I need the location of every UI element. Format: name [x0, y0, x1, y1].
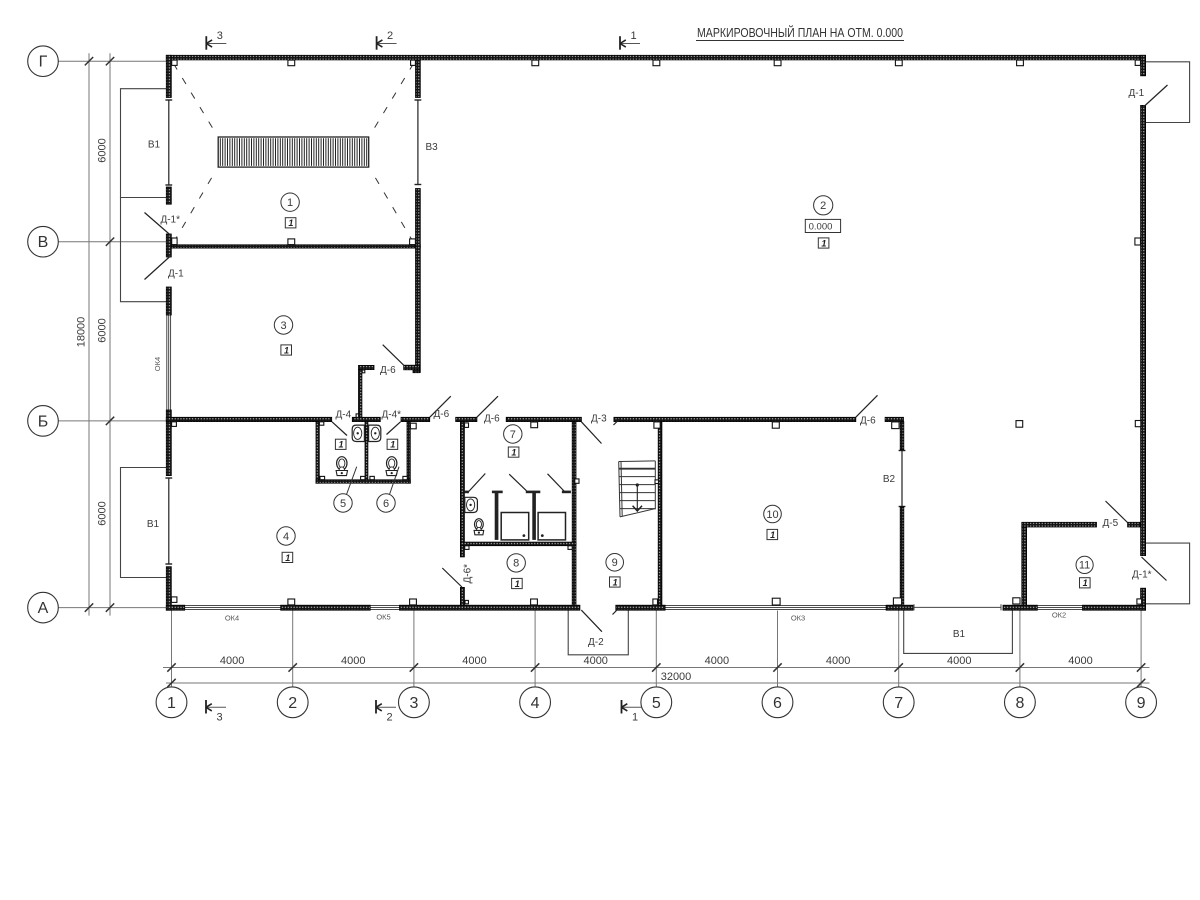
svg-text:7: 7: [510, 429, 516, 441]
svg-text:4000: 4000: [341, 655, 365, 667]
svg-text:4000: 4000: [220, 655, 244, 667]
svg-text:4: 4: [531, 695, 540, 712]
svg-text:3: 3: [217, 30, 223, 42]
svg-text:2: 2: [820, 200, 826, 212]
svg-text:Д-2: Д-2: [588, 637, 604, 648]
svg-text:4000: 4000: [462, 655, 486, 667]
svg-text:1: 1: [630, 30, 636, 42]
svg-text:В1: В1: [953, 629, 966, 640]
svg-text:Д-1*: Д-1*: [1132, 570, 1152, 581]
svg-text:4000: 4000: [705, 655, 729, 667]
svg-text:1: 1: [1083, 578, 1088, 588]
svg-text:1: 1: [515, 579, 520, 589]
svg-text:Б: Б: [38, 413, 49, 430]
svg-text:6: 6: [773, 695, 782, 712]
svg-text:В2: В2: [883, 474, 896, 485]
svg-text:Д-6*: Д-6*: [463, 564, 474, 584]
svg-text:8: 8: [1015, 695, 1024, 712]
svg-text:ОК3: ОК3: [791, 614, 805, 623]
svg-text:Д-1*: Д-1*: [160, 215, 180, 226]
svg-text:7: 7: [894, 695, 903, 712]
svg-text:Д-4*: Д-4*: [382, 409, 402, 420]
svg-text:1: 1: [511, 448, 516, 458]
svg-text:11: 11: [1079, 560, 1090, 572]
svg-text:Г: Г: [39, 54, 48, 71]
svg-text:9: 9: [612, 557, 618, 569]
svg-text:10: 10: [766, 509, 778, 521]
svg-text:3: 3: [280, 320, 286, 332]
svg-text:Д-3: Д-3: [591, 414, 607, 425]
svg-text:Д-5: Д-5: [1103, 518, 1119, 529]
svg-text:4000: 4000: [583, 655, 607, 667]
svg-text:Д-1: Д-1: [168, 269, 184, 280]
svg-text:1: 1: [285, 553, 290, 563]
svg-text:Д-6: Д-6: [484, 414, 500, 425]
svg-text:Д-1: Д-1: [1129, 88, 1145, 99]
svg-text:32000: 32000: [661, 671, 692, 683]
svg-text:1: 1: [770, 530, 775, 540]
svg-text:4000: 4000: [1068, 655, 1092, 667]
svg-text:2: 2: [288, 695, 297, 712]
svg-text:2: 2: [387, 30, 393, 42]
svg-text:Д-6: Д-6: [380, 365, 396, 376]
svg-text:МАРКИРОВОЧНЫЙ ПЛАН НА ОТМ. 0.0: МАРКИРОВОЧНЫЙ ПЛАН НА ОТМ. 0.000: [697, 25, 903, 40]
svg-text:1: 1: [613, 577, 618, 587]
svg-text:А: А: [38, 600, 49, 617]
svg-text:Д-6: Д-6: [860, 416, 876, 427]
svg-text:6000: 6000: [97, 501, 109, 525]
svg-text:2: 2: [386, 712, 392, 724]
svg-text:0.000: 0.000: [809, 222, 833, 233]
svg-text:8: 8: [513, 558, 519, 570]
svg-text:ОК4: ОК4: [153, 357, 162, 371]
svg-text:1: 1: [167, 695, 176, 712]
svg-text:1: 1: [821, 238, 826, 248]
svg-text:6: 6: [383, 498, 389, 510]
svg-text:3: 3: [216, 712, 222, 724]
svg-text:В: В: [38, 234, 49, 251]
svg-text:4000: 4000: [947, 655, 971, 667]
svg-text:В1: В1: [148, 140, 161, 151]
svg-text:1: 1: [288, 218, 293, 228]
svg-text:1: 1: [632, 712, 638, 724]
svg-text:ОК4: ОК4: [225, 614, 239, 623]
svg-text:6000: 6000: [97, 138, 109, 162]
svg-text:1: 1: [287, 197, 293, 209]
svg-text:В1: В1: [147, 519, 160, 530]
svg-text:1: 1: [338, 440, 343, 450]
svg-text:4: 4: [283, 531, 289, 543]
svg-text:6000: 6000: [97, 318, 109, 342]
svg-text:9: 9: [1137, 695, 1146, 712]
svg-text:ОК2: ОК2: [1052, 611, 1066, 620]
svg-text:18000: 18000: [76, 317, 88, 348]
svg-text:В3: В3: [426, 142, 439, 153]
svg-text:5: 5: [340, 498, 346, 510]
svg-text:1: 1: [390, 440, 395, 450]
svg-text:3: 3: [409, 695, 418, 712]
svg-text:ОК5: ОК5: [376, 613, 390, 622]
svg-text:Д-4: Д-4: [336, 409, 352, 420]
svg-text:4000: 4000: [826, 655, 850, 667]
svg-text:5: 5: [652, 695, 661, 712]
svg-text:1: 1: [284, 345, 289, 355]
svg-text:Д-6: Д-6: [434, 409, 450, 420]
